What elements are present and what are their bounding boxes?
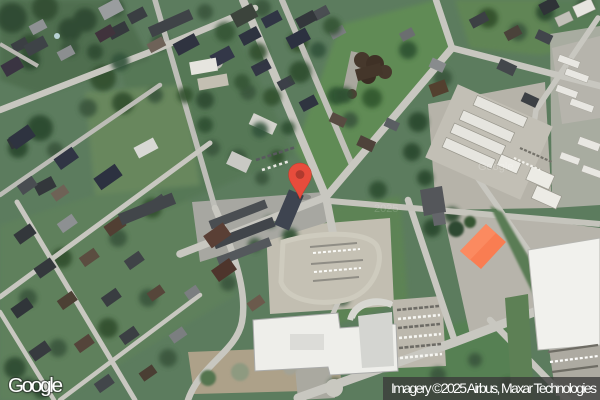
svg-text:Google: Google bbox=[8, 374, 63, 397]
svg-text:Imagery ©2025 Airbus, Maxar Te: Imagery ©2025 Airbus, Maxar Technologies bbox=[391, 380, 597, 396]
svg-text:Google: Google bbox=[478, 161, 513, 173]
svg-text:2025: 2025 bbox=[374, 203, 398, 215]
